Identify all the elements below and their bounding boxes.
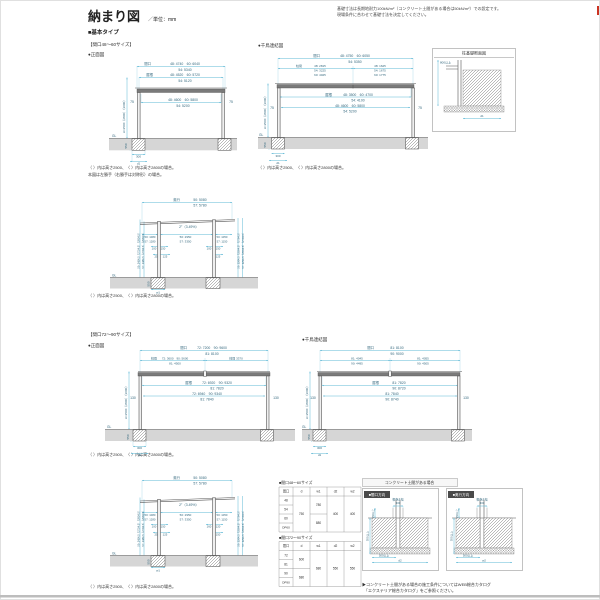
dim-label: 48: 4750 60: 6050	[340, 54, 370, 58]
dim-label: d1	[480, 114, 484, 118]
dim-label: 柱間	[151, 356, 157, 361]
dim-label: d1	[137, 162, 141, 166]
dim-label: 81: 4055	[417, 357, 429, 361]
dim-label: 800以上	[440, 60, 451, 65]
dim-label: 75	[418, 106, 422, 110]
dim-label: H=2500（2800）〈3000〉	[122, 99, 126, 133]
dim-label: 2°（3.49%）	[179, 224, 199, 229]
dim-label: 50: 1050	[217, 513, 228, 517]
dim-label: 57: 1280	[145, 240, 156, 244]
dim-label: 54: 1675	[374, 69, 386, 73]
view-label-chidori-1: ●千鳥連結図	[258, 42, 284, 49]
section-basic-type: ■基本タイプ	[88, 28, 119, 36]
concrete-slab-details: コンクリート土間がある場合■間口方向根巻き幅300550以上150以上500以上…	[363, 479, 523, 571]
dim-label: 57: 5780	[193, 204, 206, 208]
dim-label: 130	[463, 396, 469, 400]
note: 本図は左勝手（右勝手は対称形）の場合。	[88, 171, 164, 177]
dim-label: 57: 2484.5（2784.5）〈2984.5〉	[141, 231, 145, 268]
dim-label: d2	[334, 490, 338, 494]
dim-label: 500以上	[463, 554, 473, 558]
dim-label: 57: 1280	[145, 518, 156, 522]
dim-label: d2	[334, 544, 338, 548]
dim-label: d1	[318, 453, 322, 457]
dim-label: 300	[137, 446, 142, 450]
foundation-note-line1: 基礎寸法は長期地耐力100kN/m²（コンクリート土間がある場合は50kN/m²…	[337, 5, 501, 11]
dim-label: 81: 7840	[200, 398, 213, 402]
dim-label: w1	[156, 569, 160, 573]
dim-label: 550	[126, 434, 130, 439]
column	[278, 88, 281, 138]
column	[139, 376, 142, 430]
dim-label: 81: 7840	[385, 392, 398, 396]
dim-label: 50: 1050	[217, 235, 228, 239]
dim-label: 57: 3350	[180, 518, 192, 522]
dim-label: 48	[284, 499, 288, 503]
slab-box-title: ■間口方向	[369, 492, 386, 497]
dim-label: 90	[284, 572, 288, 576]
dim-label: w1	[316, 490, 320, 494]
dim-label: GL	[107, 425, 111, 429]
dim-label: 間口	[283, 489, 289, 494]
dim-label: d2	[398, 559, 402, 563]
dim-label: 400	[333, 512, 339, 516]
detail-box-footing-section: 柱基礎断面図800以上d1	[433, 49, 516, 132]
dim-label: DP60	[282, 526, 290, 530]
dim-label: GL	[112, 552, 116, 556]
drawing-side-view-basic: 奥行50: 508057: 57802°（3.49%）50: 108057: 1…	[110, 197, 258, 295]
dim-label: 90: 8720	[392, 387, 405, 391]
dim-label: 160	[207, 525, 212, 529]
table-b-title: ■間口72～90サイズ	[279, 535, 313, 540]
dim-label: w2	[350, 544, 354, 548]
dim-label: 50: 2950	[180, 513, 192, 517]
dim-label: 150	[161, 525, 166, 529]
dim-label: 550以上	[450, 531, 454, 541]
dim-label: 75	[130, 100, 134, 104]
dim-label: H=2500（2800）〈3000〉	[263, 95, 267, 129]
drawing-front-elevation-72-90: 間口72: 7200 90: 960081: 8100柱間72: 3600 90…	[105, 345, 295, 457]
dim-label: 60: 4025	[314, 73, 326, 77]
view-label-chidori-2: ●千鳥連結図	[302, 336, 328, 343]
column	[266, 376, 269, 430]
detail-box-title: 柱基礎断面図	[462, 50, 486, 56]
ground	[302, 430, 472, 441]
front-beam	[137, 89, 225, 93]
dim-label: 57: 5780	[193, 482, 206, 486]
dim-label: 50: 2264.5（2564.5）〈2764.5〉	[237, 231, 241, 268]
beam-joint	[204, 371, 206, 377]
dim-label: 54: 5350	[348, 60, 361, 64]
dim-label: 300	[275, 154, 280, 158]
dim-label: 81: 8100	[390, 346, 403, 350]
dim-label: d	[301, 490, 303, 494]
page-title: 納まり図	[88, 9, 140, 24]
dim-label: w1	[156, 291, 160, 295]
sloped-roof	[140, 220, 235, 225]
dim-label: GL	[259, 133, 263, 137]
dim-label: 75	[229, 100, 233, 104]
dim-label: 50: 2454.5（2754.5）〈2954.5〉	[137, 509, 141, 546]
dim-label: 間口	[180, 345, 187, 350]
drawing-chidori-72-90: 間口81: 810090: 900081: 404590: 449581: 40…	[302, 345, 472, 457]
dim-label: 54: 4100	[351, 99, 364, 103]
column	[319, 376, 322, 430]
drawing-canvas: 納まり図／単位：mm基礎寸法は長期地耐力100kN/m²（コンクリート土間がある…	[0, 0, 600, 600]
dim-label: 奥行	[173, 197, 180, 202]
dim-label: 550	[307, 434, 311, 439]
footing	[272, 138, 285, 149]
dim-label: 880	[316, 521, 322, 525]
edge-mark	[597, 6, 599, 15]
dim-label: 間口	[367, 345, 374, 350]
dim-label: 300	[136, 155, 141, 159]
document-page: 納まり図／単位：mm基礎寸法は長期地耐力100kN/m²（コンクリート土間がある…	[0, 0, 600, 600]
dim-label: d	[301, 544, 303, 548]
dim-label: 72: 7200 90: 9600	[197, 346, 227, 350]
dim-label: d1	[276, 161, 280, 165]
dim-label: 90: 8740	[385, 398, 398, 402]
dim-label: 680	[299, 576, 305, 580]
note: （ ）内は高さ2500、〈 〉内は高さ2800の場合。	[88, 164, 176, 170]
dim-label: 81: 7820	[392, 381, 405, 385]
column	[222, 93, 225, 139]
slab-box-title: ■奥行方向	[453, 492, 470, 497]
footing	[151, 278, 165, 289]
dim-label: 間口	[144, 61, 151, 66]
dim-label: 550	[350, 567, 356, 571]
dim-label: w1	[316, 544, 320, 548]
dim-label: 50: 5080	[193, 198, 206, 202]
page-bottom-rule	[0, 595, 600, 598]
dim-label: 54: 5120	[178, 79, 191, 83]
view-label-front-1: ●正面図	[88, 52, 105, 58]
column	[138, 93, 141, 139]
dim-label: 150	[216, 247, 221, 251]
dim-label: 400	[350, 512, 356, 516]
foundation-note-line2: 現場条件に合わせて基礎寸法を決定してください。	[337, 11, 429, 17]
dim-label: d1	[138, 453, 142, 457]
dim-label: 150	[161, 247, 166, 251]
dim-label: 54	[284, 508, 288, 512]
dim-label: 550	[124, 143, 128, 148]
footing	[206, 278, 220, 289]
front-beam	[277, 85, 414, 89]
dim-label: 奥行	[173, 475, 180, 480]
dim-label: 300	[396, 501, 401, 505]
dim-label: 50: 2454.5（2754.5）〈2954.5〉	[137, 231, 141, 268]
dim-label: 100	[152, 525, 157, 529]
dim-label: 90: 4495	[351, 362, 363, 366]
dim-label: 54: 3225	[314, 69, 326, 73]
dim-label: 550	[333, 567, 339, 571]
slab-tag: コンクリート土間がある場合	[385, 480, 435, 485]
dim-label: 間口	[313, 53, 320, 58]
dim-label: 125	[163, 255, 168, 259]
dim-label: 90: 4505	[417, 362, 429, 366]
column	[412, 88, 415, 138]
dim-label: 57: 2484.5（2784.5）〈2984.5〉	[141, 509, 145, 546]
dim-label: 100	[152, 247, 157, 251]
dim-label: 130	[310, 396, 316, 400]
drawing-side-view-72-90: 奥行50: 508057: 57802°（3.49%）50: 108057: 1…	[110, 475, 258, 573]
dim-label: 54: 5200	[176, 104, 189, 108]
size-group-72-90: 【間口72～90サイズ】	[88, 331, 134, 338]
dim-label: 550	[147, 559, 151, 564]
dim-label: 125	[216, 255, 221, 259]
dim-label: 48: 4740 60: 6040	[170, 62, 200, 66]
dim-label: 150以上	[371, 508, 375, 518]
dim-label: GL	[112, 274, 116, 278]
footing	[218, 139, 231, 151]
concrete-hatch	[463, 70, 501, 106]
dim-label: 72: 6920 90: 9320	[202, 381, 232, 385]
footing	[313, 430, 326, 441]
dim-label: 50: 5080	[193, 476, 206, 480]
dim-label: 57: 1150	[217, 518, 228, 522]
dim-label: GL	[112, 134, 116, 138]
dim-label: 柱間 3370	[229, 356, 243, 361]
dim-label: 48: 4520 60: 5720	[170, 73, 200, 77]
dim-label: w2	[482, 559, 486, 563]
dim-label: 130	[130, 396, 136, 400]
dim-label: 屋根	[372, 380, 379, 385]
note: （ ）内は高さ2500、〈 〉内は高さ2800の場合。	[258, 164, 346, 170]
dim-label: 50: 1080	[145, 235, 156, 239]
dim-label: 72	[284, 554, 288, 558]
dim-label: 50: 2950	[180, 235, 192, 239]
dim-label: H=2500（2800）〈3000〉	[124, 385, 128, 419]
foundation-dimension-tables: ■間口48～60サイズ間口dw1d2w2485460DP607507808804…	[279, 480, 361, 587]
dim-label: 54: 5200	[343, 110, 356, 114]
dim-label: 680	[316, 567, 322, 571]
size-group-48-60: 【間口48～60サイズ】	[88, 41, 134, 48]
dim-label: 57: 2294.5（2594.5）〈2794.5〉	[241, 509, 245, 546]
dim-label: 300	[317, 446, 322, 450]
dim-label: 25	[154, 533, 158, 537]
dim-label: w2	[350, 490, 354, 494]
dim-label: 90: 9000	[390, 352, 403, 356]
table-a-title: ■間口48～60サイズ	[279, 480, 313, 485]
dim-label: 60: 1775	[374, 73, 386, 77]
dim-label: 500以上	[379, 554, 389, 558]
dim-label: 50: 2264.5（2564.5）〈2764.5〉	[237, 509, 241, 546]
dim-label: 屋根	[325, 92, 332, 97]
dim-label: 75	[270, 106, 274, 110]
dim-label: 48: 3500 60: 4700	[343, 93, 373, 97]
dim-label: 間口	[283, 543, 289, 548]
dim-label: 72: 3600 90: 5600	[162, 357, 189, 361]
dim-label: 750	[299, 512, 305, 516]
dim-label: DP90	[282, 581, 290, 585]
dim-label: 550	[147, 281, 151, 286]
note: （ ）内は高さ2500、〈 〉内は高さ2800の場合。	[88, 583, 176, 589]
unit-label: ／単位：mm	[148, 16, 176, 23]
dim-label: H=2500（2800）〈3000〉	[305, 385, 309, 419]
note: （ ）内は高さ2500、〈 〉内は高さ2800の場合。	[88, 451, 176, 457]
catalog-note-line2: 「エクステリア総合カタログ」をご参照ください。	[362, 587, 456, 593]
dim-label: 48: 4600 60: 5800	[168, 98, 198, 102]
ground	[110, 556, 258, 567]
dim-label: 54: 5340	[178, 68, 191, 72]
footing	[206, 556, 220, 567]
dim-label: 150	[216, 533, 221, 537]
note: （ ）内は高さ2500、〈 〉内は高さ2800の場合。	[88, 292, 176, 298]
dim-label: 72: 6940 90: 9340	[192, 392, 222, 396]
dim-label: 550	[263, 142, 267, 147]
dim-label: 50: 1080	[145, 513, 156, 517]
dim-label: 81: 4045	[351, 357, 363, 361]
dim-label: 120	[216, 525, 221, 529]
dim-label: 600	[299, 558, 305, 562]
footing	[133, 430, 146, 441]
ground	[110, 278, 258, 289]
catalog-note-line1: ▶コンクリート土間がある場合の施工条件についてはWEB総合カタログ	[362, 581, 491, 587]
dim-label: 81: 7820	[210, 387, 223, 391]
dim-label: 48: 2815	[314, 64, 326, 68]
footing	[406, 138, 419, 149]
dim-label: 屋根	[146, 72, 153, 77]
dim-label: 60	[284, 517, 288, 521]
dim-label: 25	[154, 255, 158, 259]
footing	[260, 430, 273, 441]
dim-label: 780	[316, 503, 322, 507]
sloped-roof	[140, 498, 235, 503]
dim-label: 81: 8100	[205, 352, 218, 356]
dim-label: 2°（3.49%）	[179, 502, 199, 507]
dim-label: GL	[302, 425, 306, 429]
dim-label: 57: 3350	[180, 240, 192, 244]
footing	[451, 430, 464, 441]
dim-label: 300	[480, 501, 485, 505]
dim-label: 48: 1625	[374, 64, 386, 68]
gravel-hatch	[444, 106, 504, 112]
dim-label: 125	[163, 533, 168, 537]
drawing-chidori-48-60: 間口48: 4750 60: 605054: 5350柱間48: 281554:…	[258, 53, 428, 165]
dim-label: 柱間	[296, 63, 302, 68]
footing	[151, 556, 165, 567]
column	[457, 376, 460, 430]
dim-label: 100	[207, 247, 212, 251]
dim-label: 130	[273, 396, 279, 400]
drawing-front-elevation-48-60: 間口48: 4740 60: 604054: 5340屋根48: 4520 60…	[109, 61, 237, 166]
beam-joint	[389, 371, 391, 377]
dim-label: 57: 1150	[217, 240, 228, 244]
dim-label: 屋根	[185, 380, 192, 385]
dim-label: 48: 4600 60: 5800	[335, 104, 365, 108]
dim-label: 150以上	[455, 508, 459, 518]
dim-label: 81: 4500	[169, 362, 181, 366]
dim-label: 550以上	[366, 531, 370, 541]
dim-label: 57: 2294.5（2594.5）〈2794.5〉	[241, 231, 245, 268]
view-label-front-2: ●正面図	[88, 343, 105, 349]
footing	[132, 139, 145, 151]
dim-label: 81	[284, 563, 288, 567]
